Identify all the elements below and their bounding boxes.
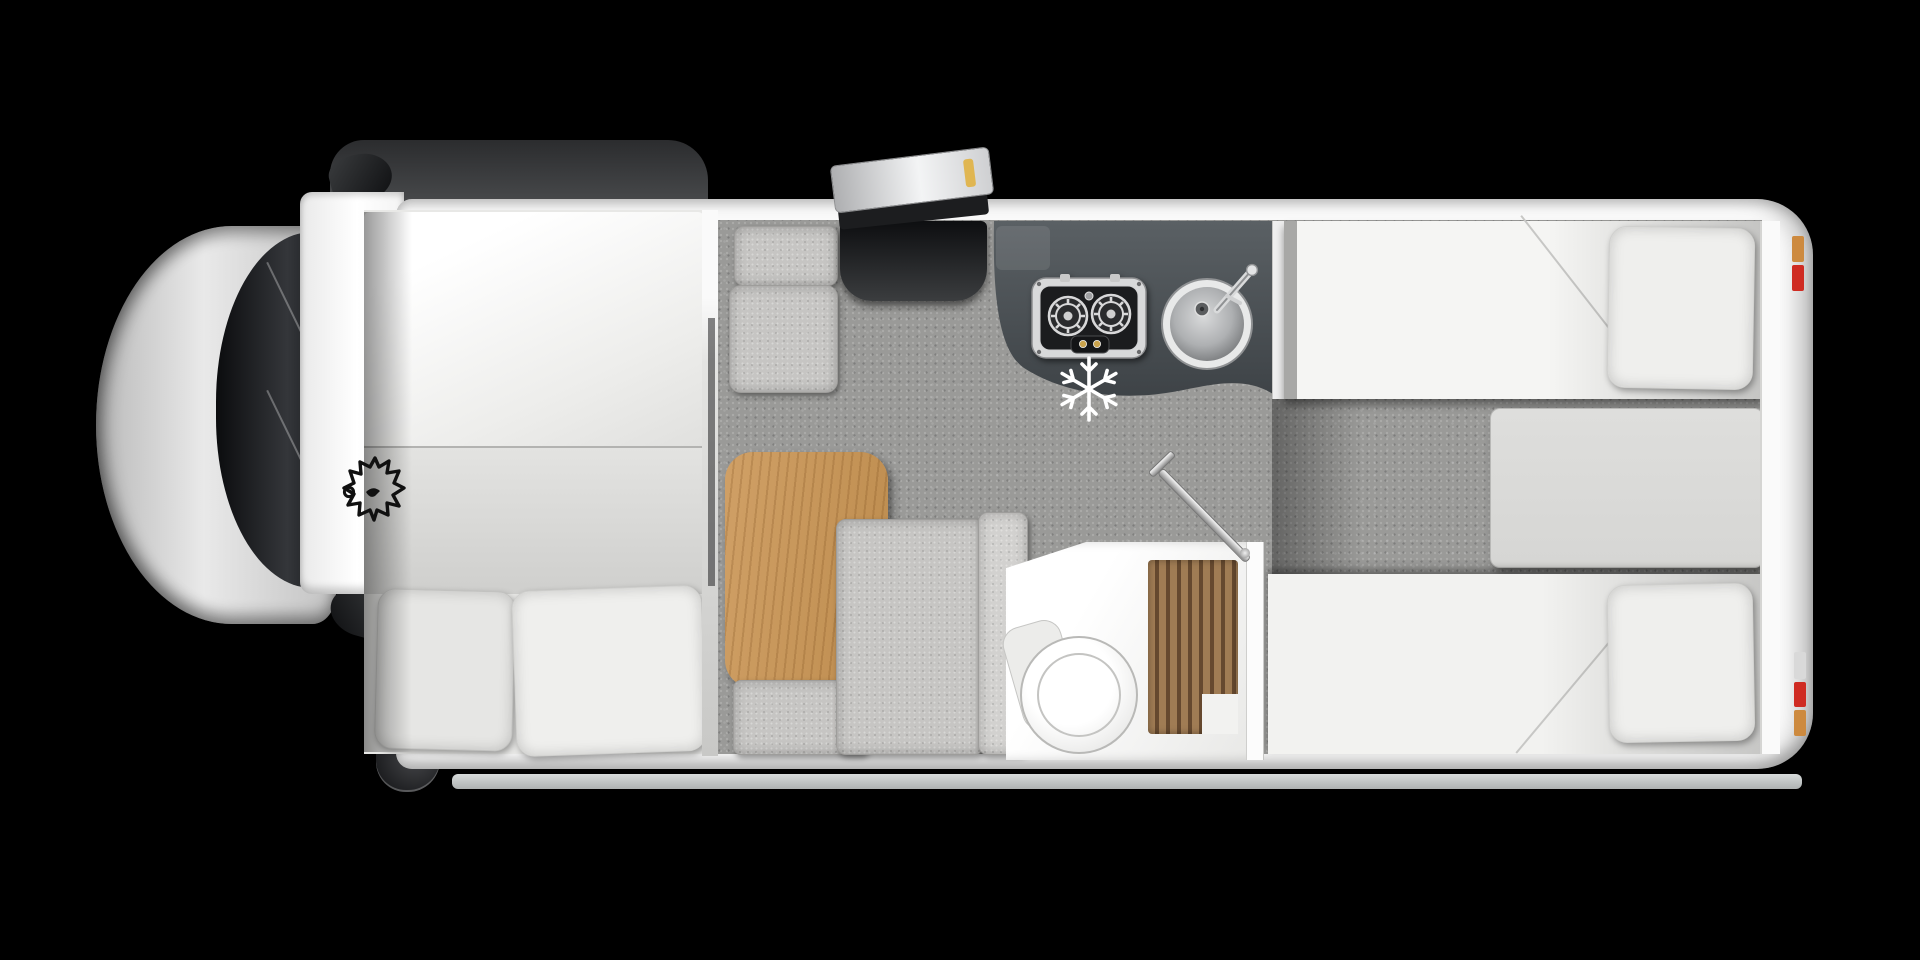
lounge-seat-backrest: [734, 226, 838, 286]
rear-wall: [1760, 221, 1780, 754]
red-lens: [1792, 265, 1804, 291]
shower-mat-notch: [1202, 694, 1238, 734]
floorplan-stage: [0, 0, 1920, 960]
clear-lens: [1794, 652, 1806, 679]
rear-bed-top-pillow: [1607, 226, 1756, 391]
bed-front-pillow-right: [511, 585, 707, 758]
rear-bed-bottom-pillow: [1607, 583, 1756, 744]
bed-front-duvet: [364, 212, 704, 448]
kitchen-sink: [1155, 256, 1263, 374]
toilet-seat-ring: [1037, 653, 1121, 737]
rear-light-bottom: [1794, 652, 1806, 736]
rear-light-top: [1792, 236, 1804, 294]
bed-front-duvet-fold: [364, 446, 704, 594]
rear-chest: [1490, 408, 1764, 568]
amber-lens: [1794, 710, 1806, 736]
amber-lens: [1792, 236, 1804, 262]
shower-mat: [1148, 560, 1238, 734]
tv-cabinet: [840, 221, 987, 301]
hob-two-burner: [1030, 273, 1148, 363]
rooflight-lamp: [963, 158, 976, 187]
lounge-seat-cushion: [729, 285, 838, 393]
red-lens: [1794, 682, 1806, 707]
maple-leaf-icon: [342, 452, 406, 524]
bathroom-wall: [1246, 542, 1263, 760]
snowflake-icon: [1058, 355, 1120, 423]
shower-rail-hinge: [1240, 548, 1250, 558]
body-skirt: [452, 774, 1802, 789]
dinette-bench-side-seat: [836, 519, 984, 755]
toilet-bowl: [1020, 636, 1138, 754]
